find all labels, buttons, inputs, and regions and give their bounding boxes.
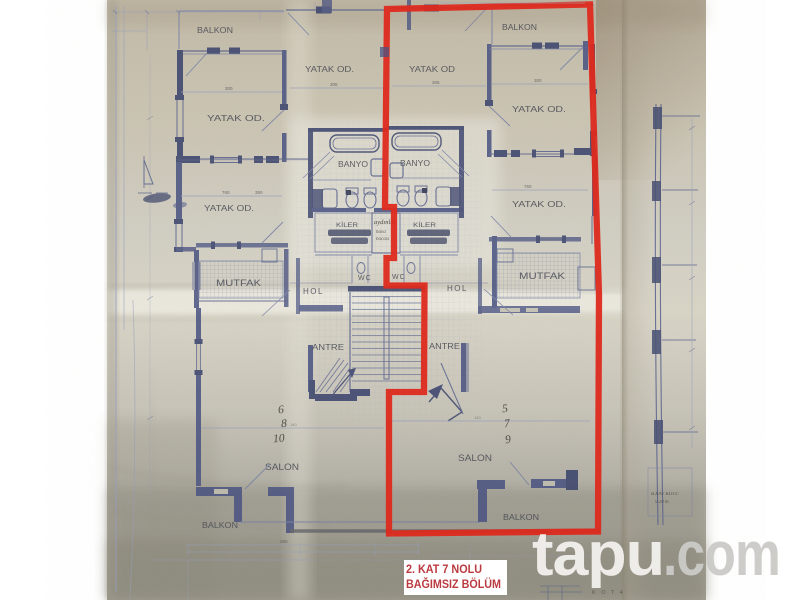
svg-text:BAĞIMSIZ BÖLÜM: BAĞIMSIZ BÖLÜM xyxy=(406,578,501,591)
svg-text:.com: .com xyxy=(663,520,780,589)
svg-text:2. KAT 7 NOLU: 2. KAT 7 NOLU xyxy=(406,564,482,576)
svg-text:tapu: tapu xyxy=(532,520,664,589)
